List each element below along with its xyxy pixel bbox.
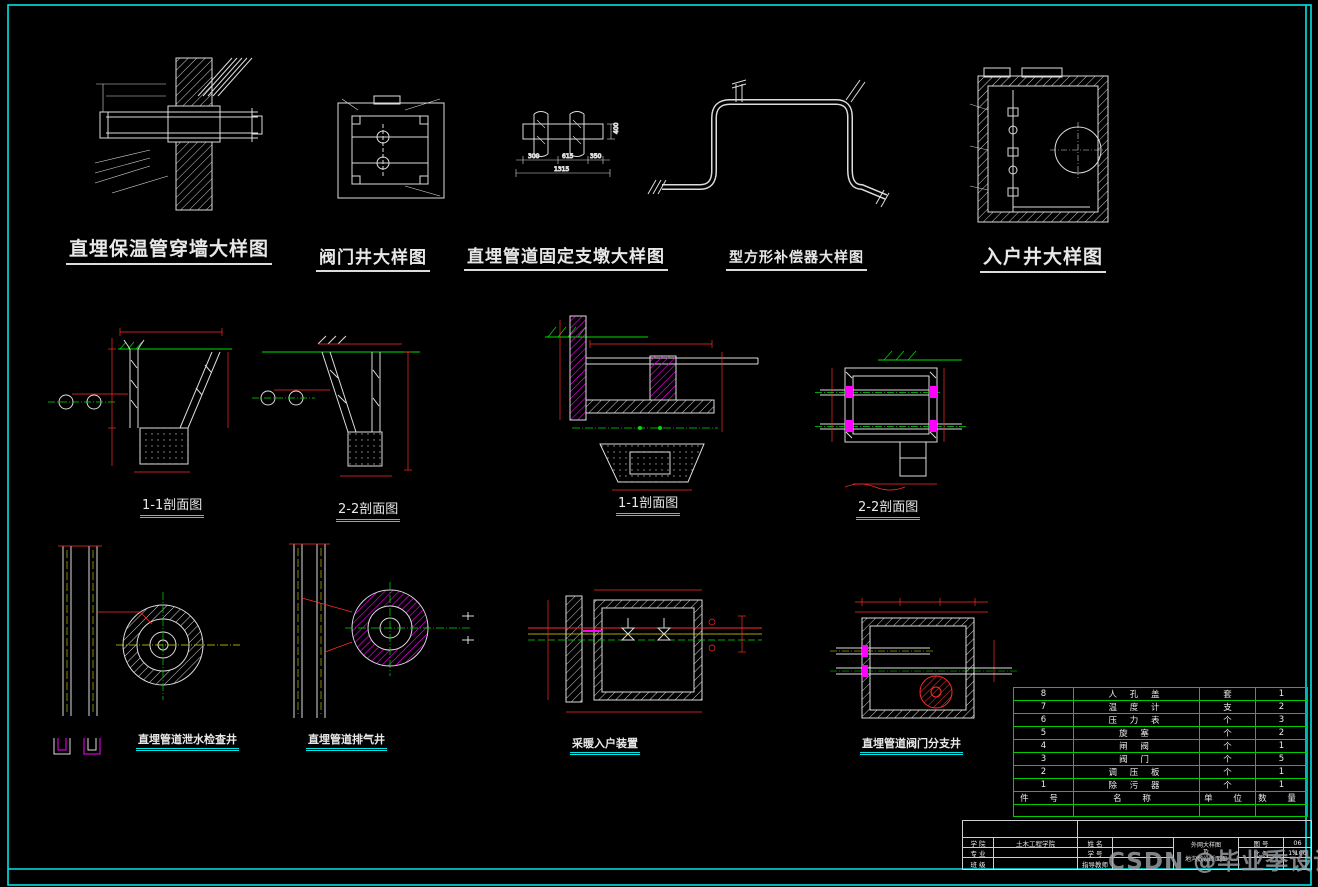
label-entry-device: 采暖入户装置 xyxy=(570,735,640,755)
svg-text:300: 300 xyxy=(528,153,540,160)
class-value xyxy=(994,858,1078,870)
plan-entry-device xyxy=(528,590,762,712)
plan-branch-well xyxy=(830,598,1018,718)
detail-wall-penetration xyxy=(95,58,262,210)
label-section-1-1-b: 1-1剖面图 xyxy=(616,492,680,516)
table-row: 8人 孔 盖套1 xyxy=(1014,688,1308,701)
svg-text:1315: 1315 xyxy=(554,166,569,173)
class-label: 班 级 xyxy=(963,858,994,870)
table-empty-row xyxy=(1014,805,1308,817)
table-row: 4闸 阀个1 xyxy=(1014,740,1308,753)
table-row: 7温 度 计支2 xyxy=(1014,701,1308,714)
svg-text:615: 615 xyxy=(562,153,574,160)
label-branch-well: 直埋管道阀门分支井 xyxy=(860,735,963,755)
title-valve-well: 阀门井大样图 xyxy=(316,243,430,272)
label-drain-well: 直埋管道泄水检查井 xyxy=(136,731,239,751)
table-row: 2调 压 板个1 xyxy=(1014,766,1308,779)
plan-drain-well xyxy=(54,546,240,754)
plan-vent-well xyxy=(289,544,474,718)
table-row: 5旋 塞个2 xyxy=(1014,727,1308,740)
parts-table: 8人 孔 盖套1 7温 度 计支2 6压 力 表个3 5旋 塞个2 4闸 阀个1… xyxy=(1013,687,1308,817)
detail-fixed-pier: 300 615 350 1315 400 xyxy=(516,112,620,178)
major-label: 专 业 xyxy=(963,848,994,858)
section-1-1-a xyxy=(48,328,232,472)
label-section-2-2-a: 2-2剖面图 xyxy=(336,498,400,522)
section-1-1-b xyxy=(545,316,758,490)
title-fixed-pier: 直埋管道固定支墩大样图 xyxy=(464,242,668,271)
cad-sheet: 300 615 350 1315 400 xyxy=(0,0,1318,887)
table-header-row: 件 号名 称单 位数 量 xyxy=(1014,792,1308,805)
detail-entry-well xyxy=(970,68,1108,222)
school-value: 土木工程学院 xyxy=(994,838,1078,848)
table-row: 1除 污 器个1 xyxy=(1014,779,1308,792)
section-2-2-a xyxy=(252,336,420,476)
title-block-blank xyxy=(963,821,1078,838)
svg-text:350: 350 xyxy=(590,153,602,160)
title-entry-well: 入户井大样图 xyxy=(980,242,1106,273)
table-row: 6压 力 表个3 xyxy=(1014,714,1308,727)
label-section-2-2-b: 2-2剖面图 xyxy=(856,496,920,520)
detail-valve-well xyxy=(338,96,444,198)
section-2-2-b xyxy=(815,351,968,490)
title-wall-penetration: 直埋保温管穿墙大样图 xyxy=(66,234,272,265)
title-block-blank xyxy=(1078,821,1312,838)
label-section-1-1-a: 1-1剖面图 xyxy=(140,494,204,518)
major-value xyxy=(994,848,1078,858)
csdn-watermark: CSDN @毕业季设计 xyxy=(1108,842,1318,876)
school-label: 学 院 xyxy=(963,838,994,848)
label-vent-well: 直埋管道排气井 xyxy=(306,731,387,751)
table-row: 3阀 门个5 xyxy=(1014,753,1308,766)
detail-compensator xyxy=(648,80,889,207)
svg-text:400: 400 xyxy=(613,122,620,134)
title-compensator: 型方形补偿器大样图 xyxy=(726,247,867,271)
